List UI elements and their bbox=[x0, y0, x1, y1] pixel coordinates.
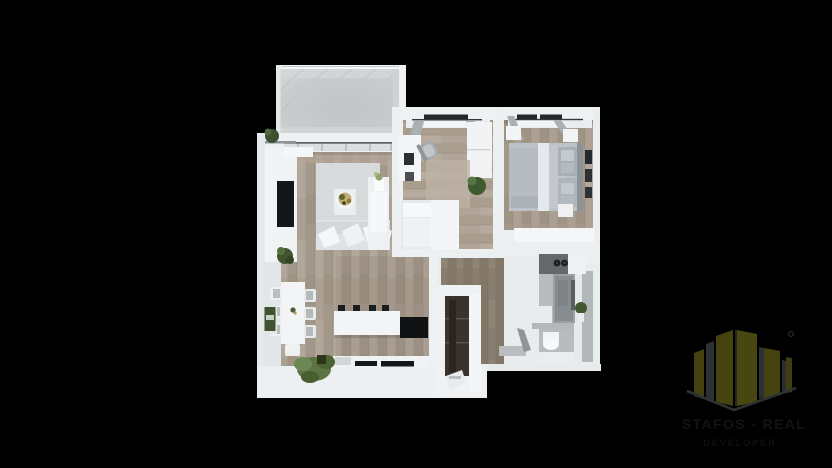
svg-text:STAFOS - REAL: STAFOS - REAL bbox=[682, 416, 807, 432]
svg-text:DEVELOPER: DEVELOPER bbox=[703, 438, 777, 448]
